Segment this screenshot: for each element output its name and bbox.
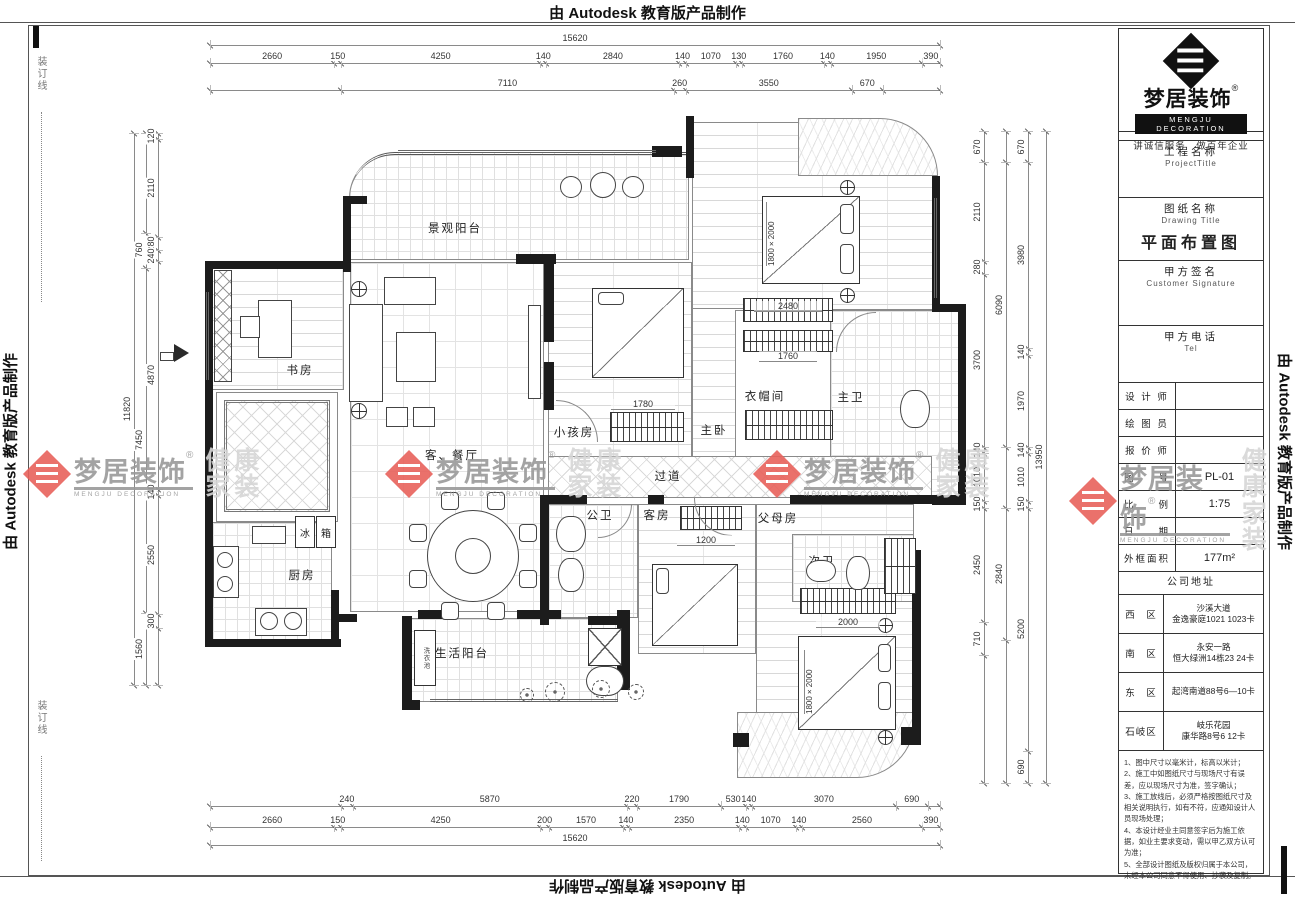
window — [934, 198, 938, 298]
banner-right: 由 Autodesk 教育版产品制作 — [1275, 282, 1295, 622]
dim-ext — [1041, 783, 1051, 784]
dim-ext — [979, 162, 989, 163]
title-block-logo: 梦居装饰® MENGJU DECORATION 讲诚信服务 做百年企业 — [1119, 29, 1263, 132]
dim-label: 3700 — [972, 349, 982, 371]
dim-ext — [1023, 162, 1033, 163]
dim-label: 140 — [1016, 442, 1026, 459]
foyer-diamond-inlay — [224, 400, 330, 512]
dim-ext — [1001, 162, 1011, 163]
furniture-ward — [610, 412, 684, 442]
furniture-ward — [745, 410, 833, 440]
dim-label: 120 — [146, 127, 156, 144]
row-draftsman: 绘 图 员 — [1119, 410, 1263, 437]
furniture-box — [384, 277, 436, 305]
furniture-cir — [560, 176, 582, 198]
binding-line-label-top: 装订线 — [34, 56, 48, 92]
wall-segment — [402, 616, 412, 710]
appliance-laundry: 洗衣池 — [414, 630, 436, 686]
furniture-box — [386, 407, 408, 427]
row-designer: 设 计 师 — [1119, 383, 1263, 410]
room-label-ubalc: 生活阳台 — [435, 645, 489, 661]
dim-label: 2660 — [261, 51, 283, 61]
furniture-pil — [878, 682, 891, 710]
dim-label: 15620 — [561, 833, 588, 843]
field-drawing-title: 图纸名称 Drawing Title 平面布置图 — [1119, 198, 1263, 261]
dim-label: 1970 — [1016, 390, 1026, 412]
dim-label: 4250 — [430, 51, 452, 61]
furniture-box — [258, 300, 292, 358]
wall-segment — [733, 733, 749, 747]
dim-ext — [141, 233, 151, 234]
dim-ext — [940, 85, 941, 95]
dim-label: 150 — [329, 51, 346, 61]
address-shiqi: 石岐区岐乐花园康华路8号6 12卡 — [1119, 712, 1263, 751]
dim-ext — [210, 85, 211, 95]
corner-mark-bottom-right — [1281, 846, 1287, 894]
furniture-plant — [628, 684, 644, 700]
dim-label: 690 — [903, 794, 920, 804]
dining-chair — [441, 492, 459, 510]
dim-label: 150 — [1016, 496, 1026, 513]
row-drawing-no: 图 号PL-01 — [1119, 464, 1263, 491]
dim-ext — [210, 801, 211, 811]
furniture-box — [349, 304, 383, 402]
dining-chair — [487, 602, 505, 620]
dim-label: 390 — [922, 815, 939, 825]
dim-label: 1010 — [1016, 466, 1026, 488]
note-5: 5、全部设计图纸及版权归属于本公司，未经本公司同意不得使用、抄袭及复制。 — [1124, 859, 1258, 882]
address-east: 东 区起湾南道88号6—10卡 — [1119, 673, 1263, 712]
binding-dots-bottom — [41, 756, 42, 861]
dim-label: 220 — [624, 794, 641, 804]
dim-label: 140 — [535, 51, 552, 61]
furniture-cir — [590, 172, 616, 198]
dim-label: 670 — [972, 138, 982, 155]
wall-segment — [588, 616, 630, 625]
dim-label: 390 — [922, 51, 939, 61]
field-project-title: 工程名称 ProjectTitle — [1119, 141, 1263, 198]
furniture-eli — [558, 558, 584, 592]
dim-label: 2660 — [261, 815, 283, 825]
dim-ext — [940, 822, 941, 832]
dim-ext — [1023, 751, 1033, 752]
dim-label: 5200 — [1016, 618, 1026, 640]
row-date: 日 期 — [1119, 518, 1263, 545]
dim-line — [158, 133, 159, 685]
wall-segment — [343, 196, 367, 204]
dim-label: 280 — [972, 259, 982, 276]
interior-dim-bed_bottom: 1800×2000 — [804, 650, 814, 714]
interior-dim-d2000: 2000 — [816, 617, 880, 628]
dim-label: 1950 — [865, 51, 887, 61]
dim-ext — [1023, 783, 1033, 784]
row-scale: 比 例1:75 — [1119, 491, 1263, 518]
dim-ext — [1041, 131, 1051, 132]
dim-line — [1006, 131, 1007, 783]
dim-label: 670 — [1016, 138, 1026, 155]
furniture-eli — [556, 516, 586, 552]
furniture-plant — [520, 688, 534, 702]
dim-label: 11820 — [122, 396, 132, 422]
room-label-parents: 父母房 — [758, 510, 799, 526]
dim-label: 240 — [338, 794, 355, 804]
dim-label: 4870 — [146, 364, 156, 386]
dim-label: 5870 — [479, 794, 501, 804]
dim-label: 3070 — [813, 794, 835, 804]
dim-label: 200 — [536, 815, 553, 825]
window — [206, 292, 210, 380]
furniture-spot — [878, 618, 893, 633]
wall-segment — [686, 116, 694, 178]
furniture-ward — [800, 588, 896, 614]
furniture-ward — [743, 330, 833, 352]
binding-dots-top — [41, 112, 42, 302]
wall-segment — [517, 610, 561, 619]
banner-top: 由 Autodesk 教育版产品制作 — [0, 2, 1295, 23]
title-block-spacer — [1119, 132, 1263, 141]
dim-label: 4250 — [430, 815, 452, 825]
dim-ext — [940, 58, 941, 68]
wall-segment — [205, 639, 341, 647]
room-label-mbath: 主卫 — [838, 389, 865, 405]
dim-label: 3980 — [1016, 244, 1026, 266]
wall-segment — [540, 495, 549, 625]
dim-ext — [721, 801, 722, 811]
furniture-pil — [878, 644, 891, 672]
dim-ext — [928, 801, 929, 811]
dim-ext — [129, 685, 139, 686]
furniture-cir — [217, 576, 233, 592]
wall-segment — [648, 495, 664, 504]
dim-ext — [940, 840, 941, 850]
dim-label: 1760 — [772, 51, 794, 61]
notes: 1、图中尺寸以毫米计，标高以米计； 2、施工中如图纸尺寸与现场尺寸有误差，应以现… — [1119, 751, 1263, 887]
dim-ext — [979, 783, 989, 784]
dim-ext — [1023, 131, 1033, 132]
dim-ext — [210, 840, 211, 850]
dim-label: 2550 — [146, 544, 156, 566]
dim-label: 2450 — [972, 554, 982, 576]
furniture-plant — [592, 680, 610, 698]
dim-label: 1010 — [972, 466, 982, 488]
room-label-master: 主卧 — [701, 422, 728, 438]
dim-ext — [129, 133, 139, 134]
dim-line — [210, 827, 940, 828]
room-label-corridor: 过道 — [655, 468, 682, 484]
dim-label: 140 — [146, 484, 156, 501]
dim-label: 13950 — [1034, 443, 1044, 470]
dim-label: 2110 — [972, 201, 982, 222]
address-west: 西 区沙溪大道金逸豪庭1021 1023卡 — [1119, 595, 1263, 634]
brand-diamond-logo-icon — [1163, 33, 1220, 90]
interior-dim-d1200: 1200 — [677, 535, 735, 546]
furniture-tri — [174, 344, 189, 362]
furniture-eli — [900, 390, 930, 428]
dim-ext — [1001, 640, 1011, 641]
dim-label: 140 — [617, 815, 634, 825]
dim-ext — [341, 85, 342, 95]
field-customer-tel: 甲方电话 Tel — [1119, 326, 1263, 383]
interior-dim-bed_top: 1800×2000 — [766, 202, 776, 266]
note-3: 3、施工放线后，必须严格按图纸尺寸及相关说明执行，如有不符，应通知设计人员现场处… — [1124, 791, 1258, 825]
title-block: 梦居装饰® MENGJU DECORATION 讲诚信服务 做百年企业 工程名称… — [1118, 28, 1264, 874]
room-label-study: 书房 — [287, 362, 314, 378]
dim-label: 1070 — [760, 815, 782, 825]
furniture-shelf — [214, 270, 232, 382]
dim-ext — [1001, 508, 1011, 509]
dim-label: 1790 — [668, 794, 690, 804]
window — [398, 150, 656, 154]
dim-label: 2560 — [851, 815, 873, 825]
furniture-spot — [840, 288, 855, 303]
furniture-ward — [884, 538, 916, 594]
banner-top-line — [0, 22, 1295, 23]
dim-label: 140 — [819, 51, 836, 61]
interior-dim-d2480: 2480 — [754, 301, 822, 312]
dining-chair — [487, 492, 505, 510]
furniture-box — [240, 316, 260, 338]
dim-ext — [210, 822, 211, 832]
appliance-fridge2: 箱 — [316, 516, 336, 548]
room-label-kitchen: 厨房 — [289, 567, 316, 583]
furniture-boxx — [588, 628, 622, 666]
dim-ext — [940, 40, 941, 50]
furniture-box — [413, 407, 435, 427]
dim-line — [984, 131, 985, 783]
wall-segment — [402, 700, 420, 710]
room-label-living: 客、餐厅 — [425, 447, 479, 463]
dim-ext — [1001, 131, 1011, 132]
interior-dim-d1780: 1780 — [611, 399, 675, 410]
note-1: 1、图中尺寸以毫米计，标高以米计； — [1124, 757, 1258, 768]
banner-left: 由 Autodesk 教育版产品制作 — [0, 282, 21, 622]
note-2: 2、施工中如图纸尺寸与现场尺寸有误差，应以现场尺寸为准，签字确认； — [1124, 768, 1258, 791]
wall-segment — [544, 254, 554, 342]
dim-ext — [210, 58, 211, 68]
dim-line — [1046, 131, 1047, 783]
dining-chair — [409, 570, 427, 588]
dim-label: 130 — [730, 51, 747, 61]
address-south: 南 区永安一路恒大绿洲14栋23 24卡 — [1119, 634, 1263, 673]
field-customer-signature: 甲方签名 Customer Signature — [1119, 261, 1263, 326]
dim-label: 260 — [671, 78, 688, 88]
furniture-cir — [260, 612, 278, 630]
room-balcony_top — [349, 152, 689, 260]
dim-ext — [1001, 783, 1011, 784]
room-label-guest: 客房 — [644, 507, 671, 523]
wall-segment — [331, 614, 357, 622]
dim-label: 710 — [972, 630, 982, 647]
wall-segment — [544, 362, 554, 410]
wall-segment — [958, 304, 966, 504]
dim-ext — [979, 622, 989, 623]
binding-line-label-bottom: 装订线 — [34, 700, 48, 736]
furniture-spot — [351, 281, 367, 297]
corner-mark-top-left — [33, 26, 39, 48]
dim-label: 150 — [972, 496, 982, 513]
dim-label: 15620 — [561, 33, 588, 43]
dim-label: 140 — [790, 815, 807, 825]
dim-label: 150 — [329, 815, 346, 825]
wall-segment — [652, 146, 682, 157]
dim-ext — [1001, 447, 1011, 448]
dim-label: 140 — [1016, 343, 1026, 360]
room-corridor — [548, 456, 932, 498]
dim-ext — [141, 268, 151, 269]
dim-ext — [210, 40, 211, 50]
furniture-pil — [840, 244, 854, 274]
dim-label: 6090 — [994, 294, 1004, 316]
dim-label: 2350 — [673, 815, 695, 825]
furniture-spot — [840, 180, 855, 195]
dim-ext — [852, 85, 853, 95]
drawing-sheet: 由 Autodesk 教育版产品制作 由 Autodesk 教育版产品制作 由 … — [0, 0, 1295, 899]
dim-line — [1028, 131, 1029, 783]
furniture-plant — [545, 682, 565, 702]
wall-segment — [901, 727, 919, 745]
furniture-box — [528, 305, 541, 399]
dim-label: 3550 — [758, 78, 780, 88]
furniture-cir — [622, 176, 644, 198]
dim-label: 1570 — [575, 815, 597, 825]
dim-ext — [979, 131, 989, 132]
row-estimator: 报 价 师 — [1119, 437, 1263, 464]
furniture-eli — [806, 560, 836, 582]
dining-table-center — [455, 538, 491, 574]
dim-line — [134, 133, 135, 685]
banner-bottom: 由 Autodesk 教育版产品制作 — [0, 876, 1295, 897]
dim-ext — [979, 655, 989, 656]
interior-dim-d1760: 1760 — [759, 351, 817, 362]
dim-line — [210, 45, 940, 46]
dim-line — [146, 133, 147, 685]
wall-segment — [205, 261, 351, 269]
dim-line — [210, 806, 940, 807]
dim-ext — [883, 85, 884, 95]
furniture-spot — [351, 403, 367, 419]
dim-label: 670 — [859, 78, 876, 88]
dining-chair — [409, 524, 427, 542]
row-area: 外框面积177m² — [1119, 545, 1263, 572]
furniture-pil — [598, 292, 624, 305]
dim-ext — [940, 801, 941, 811]
furniture-box — [396, 332, 436, 382]
dim-label: 2840 — [994, 563, 1004, 585]
room-label-balcony_top: 景观阳台 — [428, 220, 482, 236]
dim-ext — [153, 685, 163, 686]
dim-label: 1560 — [134, 638, 144, 660]
dim-label: 240 — [146, 247, 156, 264]
dim-label: 7450 — [134, 429, 144, 451]
note-4: 4、本设计经业主同意签字后为施工依据，如业主要求变动，需以甲乙双方认可为准； — [1124, 825, 1258, 859]
dim-label: 140 — [972, 442, 982, 459]
dining-chair — [519, 570, 537, 588]
drawing-title-value: 平面布置图 — [1119, 229, 1263, 253]
dim-label: 2110 — [146, 177, 156, 198]
dim-line — [210, 845, 940, 846]
brand-subtitle: MENGJU DECORATION — [1135, 114, 1247, 134]
furniture-pil — [656, 568, 669, 594]
furniture-pil — [840, 204, 854, 234]
dim-label: 530 — [725, 794, 742, 804]
dim-label: 2840 — [602, 51, 624, 61]
dim-label: 140 — [674, 51, 691, 61]
banner-bottom-line — [0, 876, 1295, 877]
furniture-box — [160, 352, 174, 361]
dim-label: 300 — [146, 613, 156, 630]
dim-line — [210, 90, 940, 91]
furniture-box — [252, 526, 286, 544]
furniture-spot — [878, 730, 893, 745]
dim-ext — [141, 685, 151, 686]
appliance-fridge1: 冰 — [295, 516, 315, 548]
furniture-cir — [217, 552, 233, 568]
dim-label: 140 — [734, 815, 751, 825]
dim-label: 1070 — [700, 51, 722, 61]
dim-label: 690 — [1016, 758, 1026, 775]
furniture-cir — [284, 612, 302, 630]
wall-segment — [790, 495, 960, 504]
furniture-eli — [846, 556, 870, 590]
dining-chair — [441, 602, 459, 620]
dining-chair — [519, 524, 537, 542]
dim-ext — [896, 801, 897, 811]
dim-label: 140 — [740, 794, 757, 804]
address-header: 公司地址 — [1119, 572, 1263, 595]
dim-label: 7110 — [497, 78, 518, 88]
room-label-cloak: 衣帽间 — [745, 388, 786, 404]
dim-label: 760 — [134, 242, 144, 259]
